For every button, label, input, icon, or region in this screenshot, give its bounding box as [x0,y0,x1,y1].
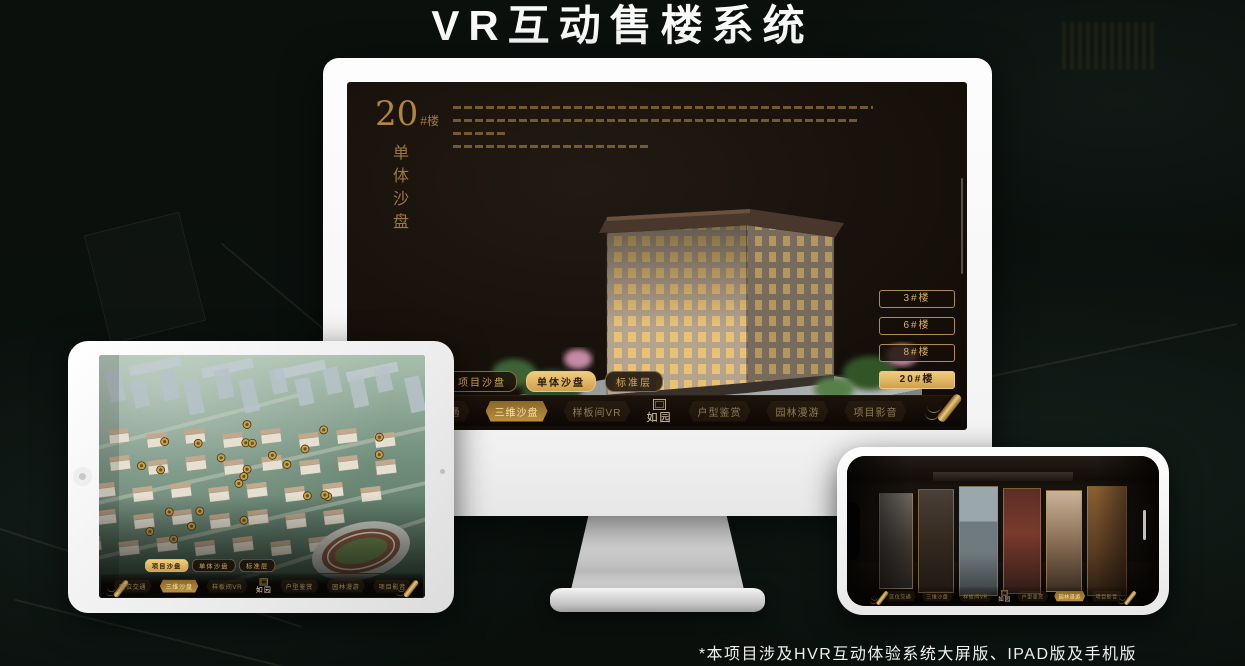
tablet-camera-dot [79,473,86,480]
floor-button-group: 3#楼 6#楼 8#楼 20#楼 [879,290,957,398]
vr-scene-panel[interactable] [1046,490,1082,592]
building-number: 20 [375,94,418,134]
floor-button-3[interactable]: 3#楼 [879,290,955,308]
seal-icon [1001,590,1008,596]
phone-device: 区位交通 三维沙盘 样板间VR 如园 户型鉴赏 园林漫游 项目影音 [837,447,1169,615]
nav-item-garden-roam[interactable]: 园林漫游 [326,579,364,592]
background-road-line [983,323,1238,379]
vr-scene-panel[interactable] [918,489,954,593]
nav-item-floorplan[interactable]: 户型鉴赏 [688,401,750,422]
ruyuan-logo: 如园 [255,578,271,593]
tablet-tab-single-building[interactable]: 单体沙盘 [192,559,235,572]
tablet-nav-bar: 区位交通 三维沙盘 样板间VR 如园 户型鉴赏 园林漫游 项目影音 [101,573,423,597]
scroll-menu-icon[interactable] [398,581,415,598]
scene-lintel [933,472,1073,481]
phone-nav-bar: 区位交通 三维沙盘 样板间VR 如园 户型鉴赏 园林漫游 项目影音 [851,587,1155,604]
nav-item-garden-roam[interactable]: 园林漫游 [766,401,828,422]
ruyuan-logo: 如园 [646,399,672,423]
project-footnote: *本项目涉及HVR互动体验系统大屏版、IPAD版及手机版 [699,640,1137,664]
tab-standard-floor[interactable]: 标准层 [605,371,663,392]
background-plaque [84,212,206,344]
monitor-stand-neck [570,512,745,594]
vr-scene-panel[interactable] [959,486,998,596]
nav-item-showroom-vr[interactable]: 样板间VR [564,401,631,422]
poster-canvas: VR互动售楼系统 20#楼 单体沙盘 [0,0,1245,666]
tablet-tab-standard-floor[interactable]: 标准层 [239,559,275,572]
nav-item-showroom-vr[interactable]: 样板间VR [958,590,991,601]
nav-item-floorplan[interactable]: 户型鉴赏 [280,579,318,592]
page-title: VR互动售楼系统 [0,0,1245,52]
nav-item-location[interactable]: 区位交通 [884,590,915,601]
nav-item-floorplan[interactable]: 户型鉴赏 [1017,590,1048,601]
nav-item-location[interactable]: 区位交通 [113,579,151,592]
building-title: 20#楼 [375,94,439,134]
seal-icon [653,399,666,410]
tablet-device: 项目沙盘 单体沙盘 标准层 区位交通 三维沙盘 样板间VR 如园 户型鉴赏 园林… [68,341,454,613]
tablet-tab-project-sandbox[interactable]: 项目沙盘 [145,559,188,572]
tablet-home-button[interactable] [440,469,445,474]
nav-item-showroom-vr[interactable]: 样板间VR [206,579,247,592]
view-tab-group: 项目沙盘 单体沙盘 标准层 [447,371,663,392]
seal-icon [259,578,267,585]
ruyuan-logo: 如园 [998,590,1011,602]
tab-single-building[interactable]: 单体沙盘 [526,371,596,392]
floor-button-6[interactable]: 6#楼 [879,317,955,335]
vr-scene-panel[interactable] [1003,488,1041,594]
tablet-screen: 项目沙盘 单体沙盘 标准层 区位交通 三维沙盘 样板间VR 如园 户型鉴赏 园林… [99,355,425,598]
description-line [453,132,507,135]
nav-item-project-media[interactable]: 项目影音 [844,401,906,422]
nav-item-garden-roam[interactable]: 园林漫游 [1054,590,1085,601]
floor-button-20[interactable]: 20#楼 [879,371,955,389]
description-line [453,106,873,109]
tab-project-sandbox[interactable]: 项目沙盘 [447,371,517,392]
nav-item-3d-sandbox[interactable]: 三维沙盘 [486,401,548,422]
phone-notch [847,502,860,560]
phone-screen: 区位交通 三维沙盘 样板间VR 如园 户型鉴赏 园林漫游 项目影音 [847,456,1159,606]
monitor-stand-base [550,588,765,612]
building-unit-label: #楼 [420,114,439,128]
scene-shadow-right [1095,456,1159,606]
scroll-menu-icon[interactable] [929,396,957,424]
vr-scene-gallery [879,486,1127,596]
phone-scroll-indicator[interactable] [1143,510,1146,540]
description-line [453,119,859,122]
tablet-view-tab-group: 项目沙盘 单体沙盘 标准层 [145,559,275,572]
floor-button-8[interactable]: 8#楼 [879,344,955,362]
nav-item-3d-sandbox[interactable]: 三维沙盘 [159,579,197,592]
screen-scrollbar[interactable] [961,178,963,274]
scroll-menu-icon[interactable] [1120,592,1134,606]
nav-item-3d-sandbox[interactable]: 三维沙盘 [921,590,952,601]
